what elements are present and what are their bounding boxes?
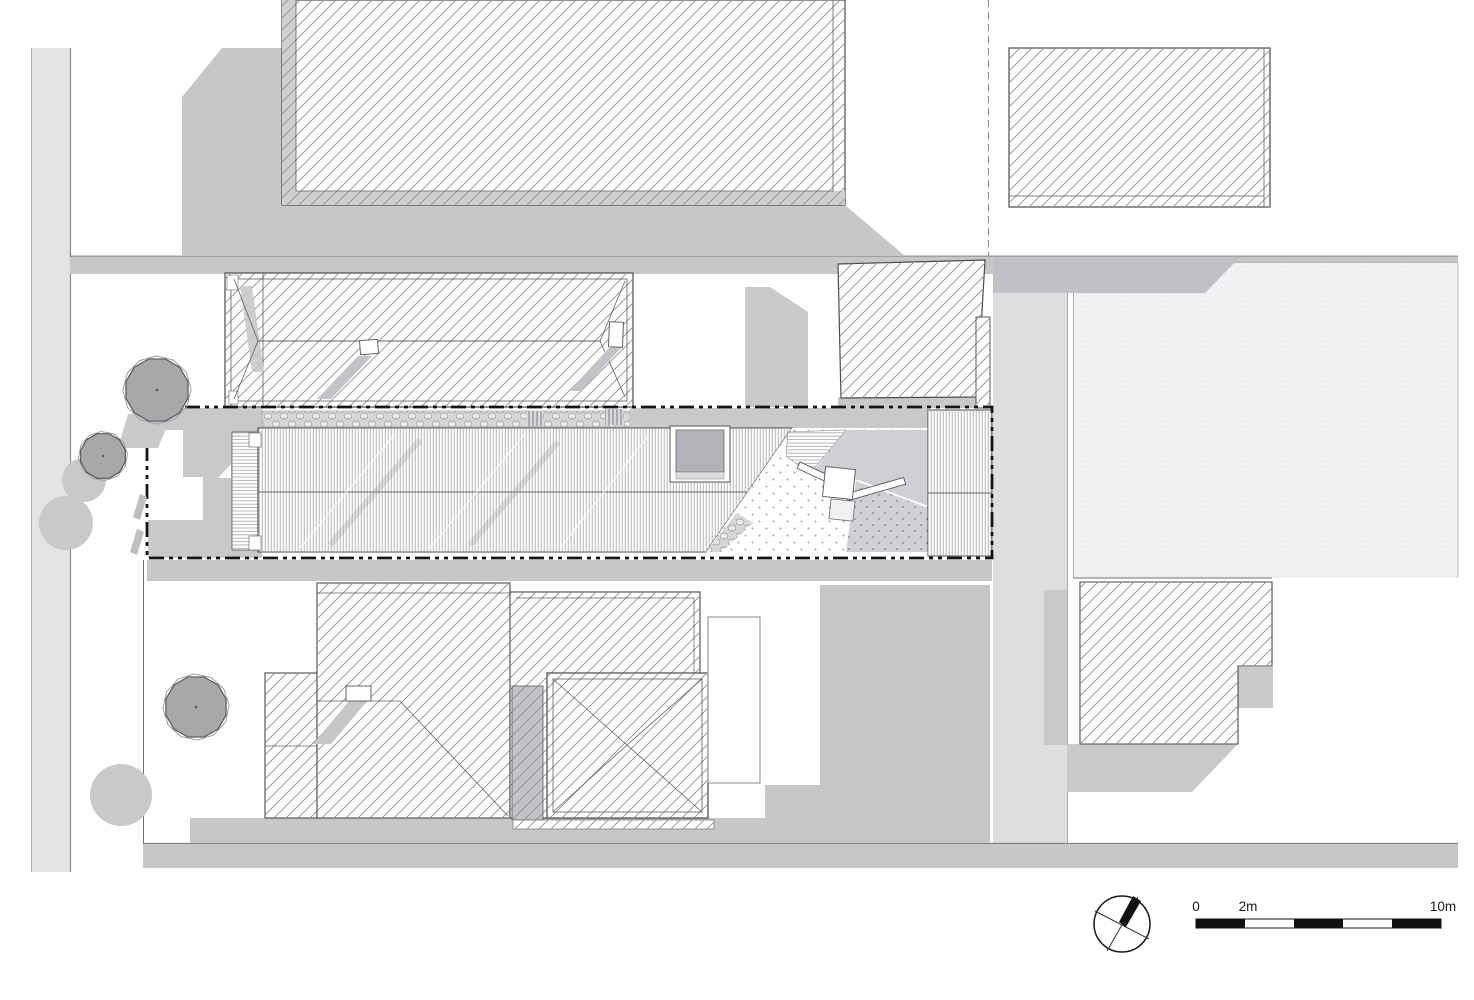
scale-label-0: 0 (1192, 899, 1200, 914)
driveway-east (993, 257, 1068, 868)
courtyard-step-large (823, 467, 856, 500)
north-block-building (182, 0, 905, 256)
garden-strip-gray (630, 408, 928, 428)
pavilion-roof (547, 673, 708, 818)
scale-label-10m: 10m (1430, 899, 1456, 914)
left-wing (265, 673, 317, 818)
connector (512, 686, 543, 820)
shadow-driveway-top (993, 257, 1240, 293)
se-shadow-driveway (1044, 590, 1067, 745)
street-verge-west (31, 48, 71, 872)
scale-label-2m: 2m (1239, 899, 1258, 914)
site-plan: 0 2m 10m (0, 0, 1474, 1000)
subject-site (148, 408, 992, 558)
entrance-building (838, 260, 990, 408)
east-boundary-wall (976, 317, 990, 408)
tree-shadow-blob (90, 764, 152, 826)
terrace (708, 617, 760, 783)
northeast-building (1009, 48, 1270, 207)
shadow-under-boundary (147, 560, 992, 581)
road-south (143, 844, 1458, 869)
north-arrow-icon (1094, 896, 1150, 952)
tree-shadow-blob (39, 496, 93, 550)
east-roof-band (928, 410, 992, 556)
west-deck (232, 432, 258, 550)
neighbor-house-south (265, 583, 714, 829)
south-garden-wall (513, 820, 714, 829)
deck-tab-top (249, 433, 261, 447)
deck-tab-bottom (249, 536, 261, 550)
skylight (670, 426, 730, 482)
annex-tab-top (227, 275, 238, 290)
courtyard-step-small (829, 499, 855, 521)
field-east (1073, 262, 1458, 578)
se-notch-gray (1238, 667, 1273, 708)
garden-strip-cobbles (262, 411, 630, 427)
